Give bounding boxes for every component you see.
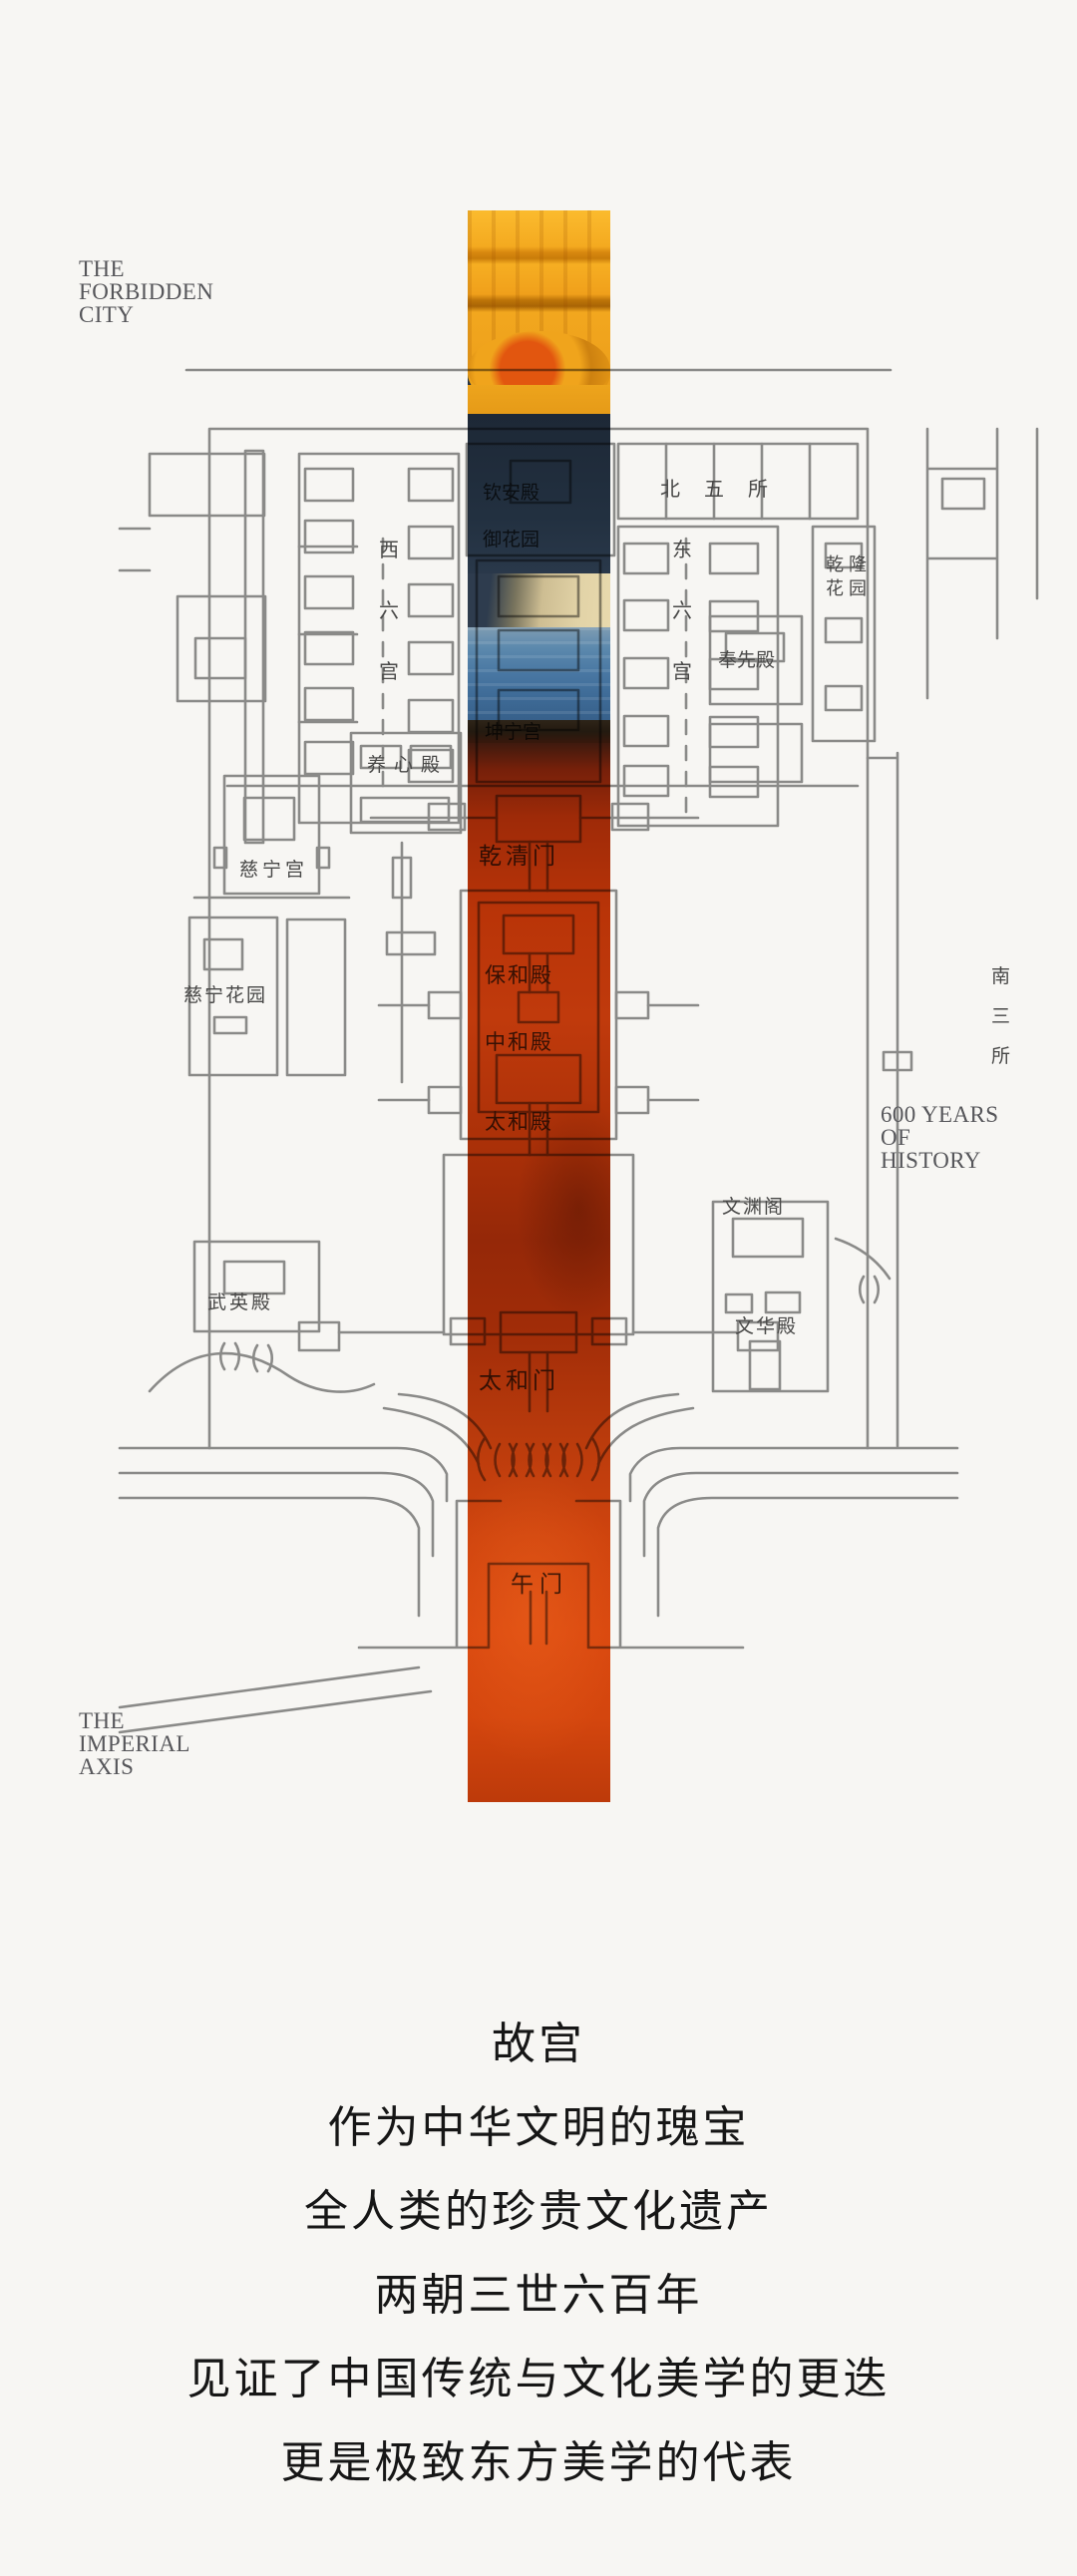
title-line: HISTORY [881, 1149, 998, 1172]
map-label: 太和门 [479, 1368, 559, 1393]
title-line: 600 YEARS [881, 1103, 998, 1126]
map-label: 奉先殿 [718, 649, 775, 671]
caption-line: 两朝三世六百年 [0, 2254, 1077, 2338]
map-label: 花园 [826, 578, 872, 598]
map-label: 太和殿 [485, 1110, 553, 1134]
map-label: 慈宁宫 [239, 859, 308, 881]
map-label: 慈宁花园 [183, 984, 267, 1006]
map-label: 南三所 [991, 965, 1010, 1067]
map-label: 北五所 [660, 478, 792, 501]
map-label: 东六宫 [672, 539, 692, 683]
caption-line: 更是极致东方美学的代表 [0, 2421, 1077, 2505]
caption-line: 作为中华文明的瑰宝 [0, 2086, 1077, 2170]
title-forbidden-city: THE FORBIDDEN CITY [79, 257, 213, 326]
map-label: 坤宁宫 [485, 721, 541, 743]
title-line: IMPERIAL [79, 1732, 190, 1755]
map-label: 文渊阁 [722, 1196, 785, 1218]
map-label: 午门 [511, 1572, 568, 1597]
title-line: THE [79, 257, 213, 280]
title-imperial-axis: THE IMPERIAL AXIS [79, 1709, 190, 1778]
title-line: FORBIDDEN [79, 280, 213, 303]
map-label: 文华殿 [735, 1315, 798, 1337]
map-label: 养心殿 [367, 754, 448, 776]
chinese-caption: 故宫 作为中华文明的瑰宝 全人类的珍贵文化遗产 两朝三世六百年 见证了中国传统与… [0, 2003, 1077, 2505]
map-label: 御花园 [483, 529, 539, 551]
title-line: CITY [79, 303, 213, 326]
caption-line: 全人类的珍贵文化遗产 [0, 2170, 1077, 2254]
map-label: 西六宫 [379, 540, 399, 683]
caption-line: 见证了中国传统与文化美学的更迭 [0, 2338, 1077, 2421]
map-label: 乾隆 [826, 554, 872, 574]
title-line: THE [79, 1709, 190, 1732]
forbidden-city-poster: 钦安殿御花园坤宁宫乾清门保和殿中和殿太和殿太和门午门北五所东六宫西六宫乾隆花园奉… [0, 0, 1077, 2576]
map-label: 乾清门 [479, 844, 559, 869]
caption-line: 故宫 [0, 2003, 1077, 2086]
title-line: AXIS [79, 1755, 190, 1778]
map-label: 钦安殿 [483, 482, 539, 504]
title-line: OF [881, 1126, 998, 1149]
map-outlines [120, 370, 1037, 1732]
map-label: 武英殿 [207, 1291, 273, 1313]
map-label: 保和殿 [485, 963, 553, 987]
map-label: 中和殿 [485, 1030, 553, 1054]
title-600-years: 600 YEARS OF HISTORY [881, 1103, 998, 1172]
